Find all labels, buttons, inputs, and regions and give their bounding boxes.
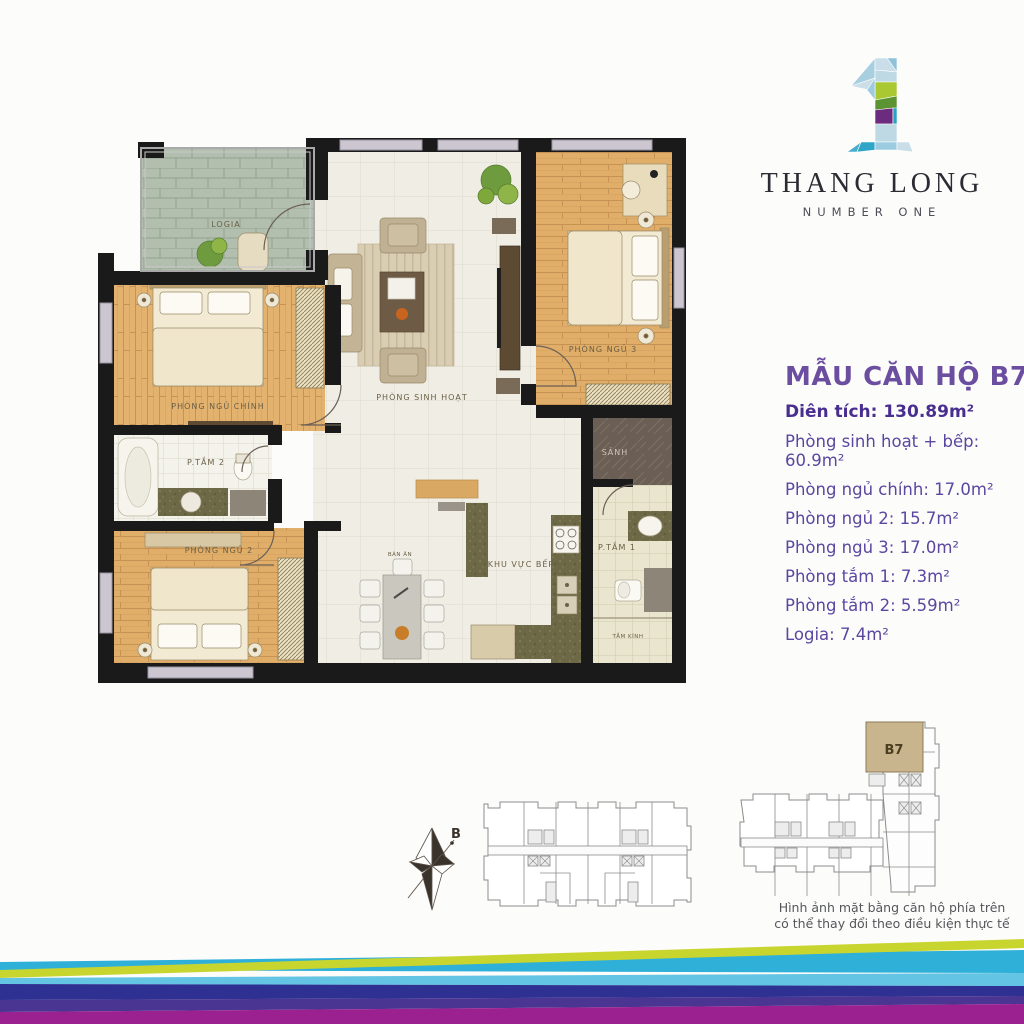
kitchen-cabinet-top (416, 480, 478, 498)
area-line: Phòng ngủ chính: 17.0m² (785, 480, 1015, 499)
room-label-living: PHÒNG SINH HOẠT (376, 391, 468, 403)
master-wardrobe (296, 288, 324, 388)
number-one-mosaic-icon (817, 50, 927, 162)
brand-tagline: NUMBER ONE (758, 205, 986, 219)
unit-title: MẪU CĂN HỘ B7 (785, 362, 1015, 392)
room-label-master: PHÒNG NGỦ CHÍNH (171, 400, 264, 411)
disclaimer: Hình ảnh mặt bằng căn hộ phía trên có th… (742, 900, 1024, 932)
area-line: Phòng sinh hoạt + bếp: 60.9m² (785, 432, 1015, 470)
washbasin (638, 516, 662, 536)
kitchen-cabinet-bottom (471, 625, 515, 659)
tv-cabinet (500, 246, 520, 370)
kitchen-island (466, 503, 488, 577)
disclaimer-line1: Hình ảnh mặt bằng căn hộ phía trên (742, 900, 1024, 916)
dining-table (383, 575, 421, 659)
keyplan-right: B7 (733, 712, 973, 922)
floor-plan: LOGIA PHÒNG NGỦ CHÍNH P.TẮM 2 PHÒNG NGỦ … (88, 128, 708, 698)
room-label-kitchen: KHU VỰC BẾP (488, 558, 555, 569)
bed3-wardrobe (586, 384, 670, 405)
room-label-logia: LOGIA (211, 220, 241, 229)
unit-total-area: Diên tích: 130.89m² (785, 402, 1015, 422)
area-line: Phòng ngủ 2: 15.7m² (785, 509, 1015, 528)
compass-icon: B (400, 820, 464, 918)
unit-info: MẪU CĂN HỘ B7 Diên tích: 130.89m² Phòng … (785, 362, 1015, 644)
bottom-wave-stripes (0, 930, 1024, 1024)
room-label-dining: BÀN ĂN (388, 551, 412, 558)
room-label-bed2: PHÒNG NGỦ 2 (185, 544, 254, 555)
room-label-bed3: PHÒNG NGỦ 3 (569, 343, 638, 354)
keyplan-left (480, 788, 695, 918)
tv-icon (497, 268, 501, 348)
bed2-shelf (145, 533, 241, 547)
area-line: Phòng tắm 1: 7.3m² (785, 567, 1015, 586)
area-line: Phòng ngủ 3: 17.0m² (785, 538, 1015, 557)
b7-unit-label: B7 (885, 743, 904, 758)
room-label-shower: TẮM KÍNH (611, 632, 643, 640)
compass-north-label: B (451, 827, 461, 842)
bed2-wardrobe (278, 558, 304, 660)
room-label-hall: SẢNH (602, 446, 629, 457)
area-line: Phòng tắm 2: 5.59m² (785, 596, 1015, 615)
area-line: Logia: 7.4m² (785, 625, 1015, 644)
lounge-chair (238, 233, 268, 271)
brand-name: THANG LONG (758, 168, 986, 200)
brand-logo: THANG LONG NUMBER ONE (758, 50, 986, 219)
